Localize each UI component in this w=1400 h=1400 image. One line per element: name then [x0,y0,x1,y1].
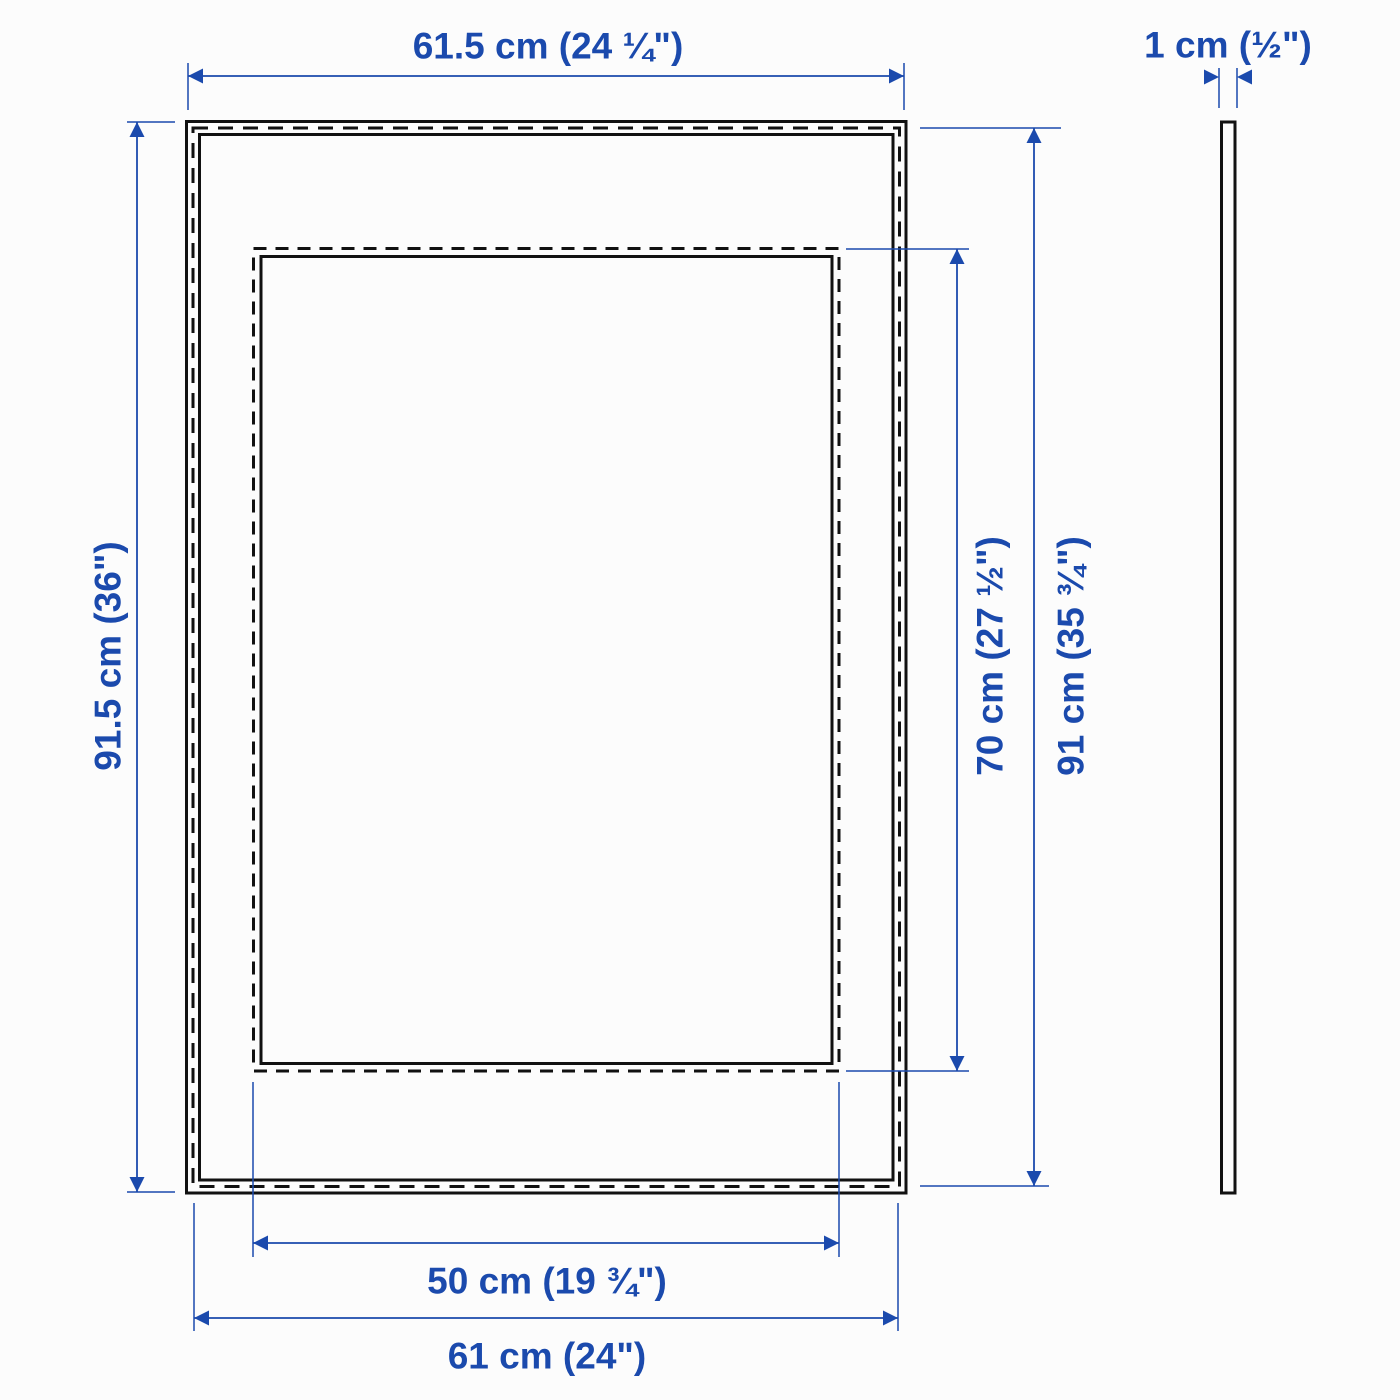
back-height-label: 91 cm (35 ¾") [1053,536,1090,776]
dim-opening-width [253,1082,839,1257]
opening-solid-edge [261,257,832,1064]
opening-height-label: 70 cm (27 ½") [972,536,1009,776]
frame-outer-edge [187,122,907,1194]
frame-width-label: 61.5 cm (24 ¼") [413,28,684,65]
dim-frame-width [188,63,904,110]
opening-dashed-line [254,249,840,1072]
frame-inner-edge [200,135,894,1181]
profile-outline [1222,122,1236,1193]
front-view-frame [187,122,907,1194]
dim-frame-height [127,122,175,1192]
frame-moulding-dashed-line [193,128,900,1187]
back-width-label: 61 cm (24") [448,1338,647,1375]
thickness-label: 1 cm (½") [1144,27,1312,64]
side-view-profile [1222,122,1236,1193]
opening-width-label: 50 cm (19 ¾") [427,1263,667,1300]
diagram-canvas: 61.5 cm (24 ¼") 91.5 cm (36") 70 cm (27 … [0,0,1400,1400]
dim-thickness [1204,68,1252,108]
frame-height-label: 91.5 cm (36") [90,541,127,770]
dimension-drawing [0,0,1400,1400]
